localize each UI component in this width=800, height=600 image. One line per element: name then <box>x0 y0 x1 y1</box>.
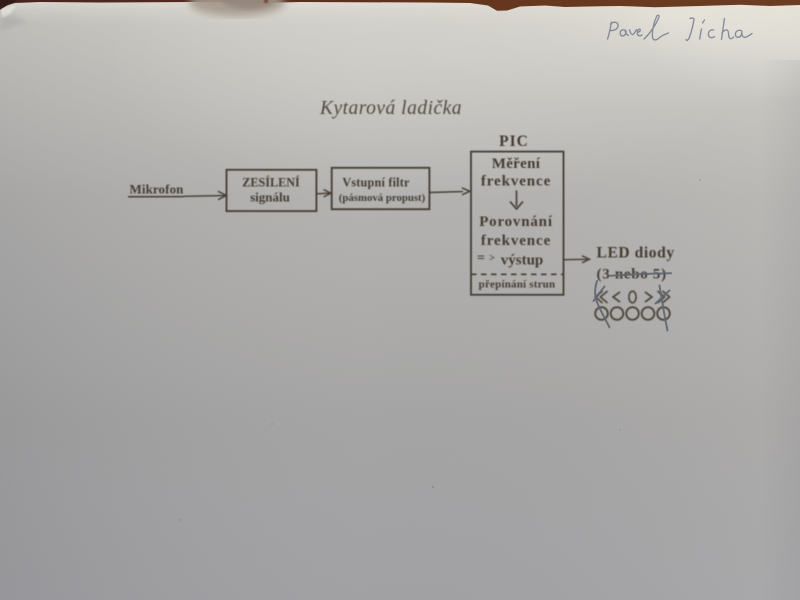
svg-text:Porovnání: Porovnání <box>479 214 553 230</box>
svg-text:ZESÍLENÍ: ZESÍLENÍ <box>242 176 300 190</box>
svg-text:LED diody: LED diody <box>597 245 675 262</box>
svg-text:Mikrofon: Mikrofon <box>130 182 185 197</box>
svg-text:přepínání strun: přepínání strun <box>479 279 556 291</box>
svg-text:(pásmová propust): (pásmová propust) <box>339 192 426 204</box>
svg-text:výstup: výstup <box>501 253 544 269</box>
svg-text:Vstupní filtr: Vstupní filtr <box>342 176 410 190</box>
svg-text:=: = <box>477 251 485 266</box>
svg-text:signálu: signálu <box>250 190 290 205</box>
svg-text:>: > <box>489 253 495 264</box>
svg-text:Kytarová ladička: Kytarová ladička <box>319 98 462 119</box>
svg-text:PIC: PIC <box>499 133 529 150</box>
svg-text:frekvence: frekvence <box>481 233 551 249</box>
svg-text:Měření: Měření <box>492 156 541 172</box>
svg-text:frekvence: frekvence <box>481 174 551 190</box>
